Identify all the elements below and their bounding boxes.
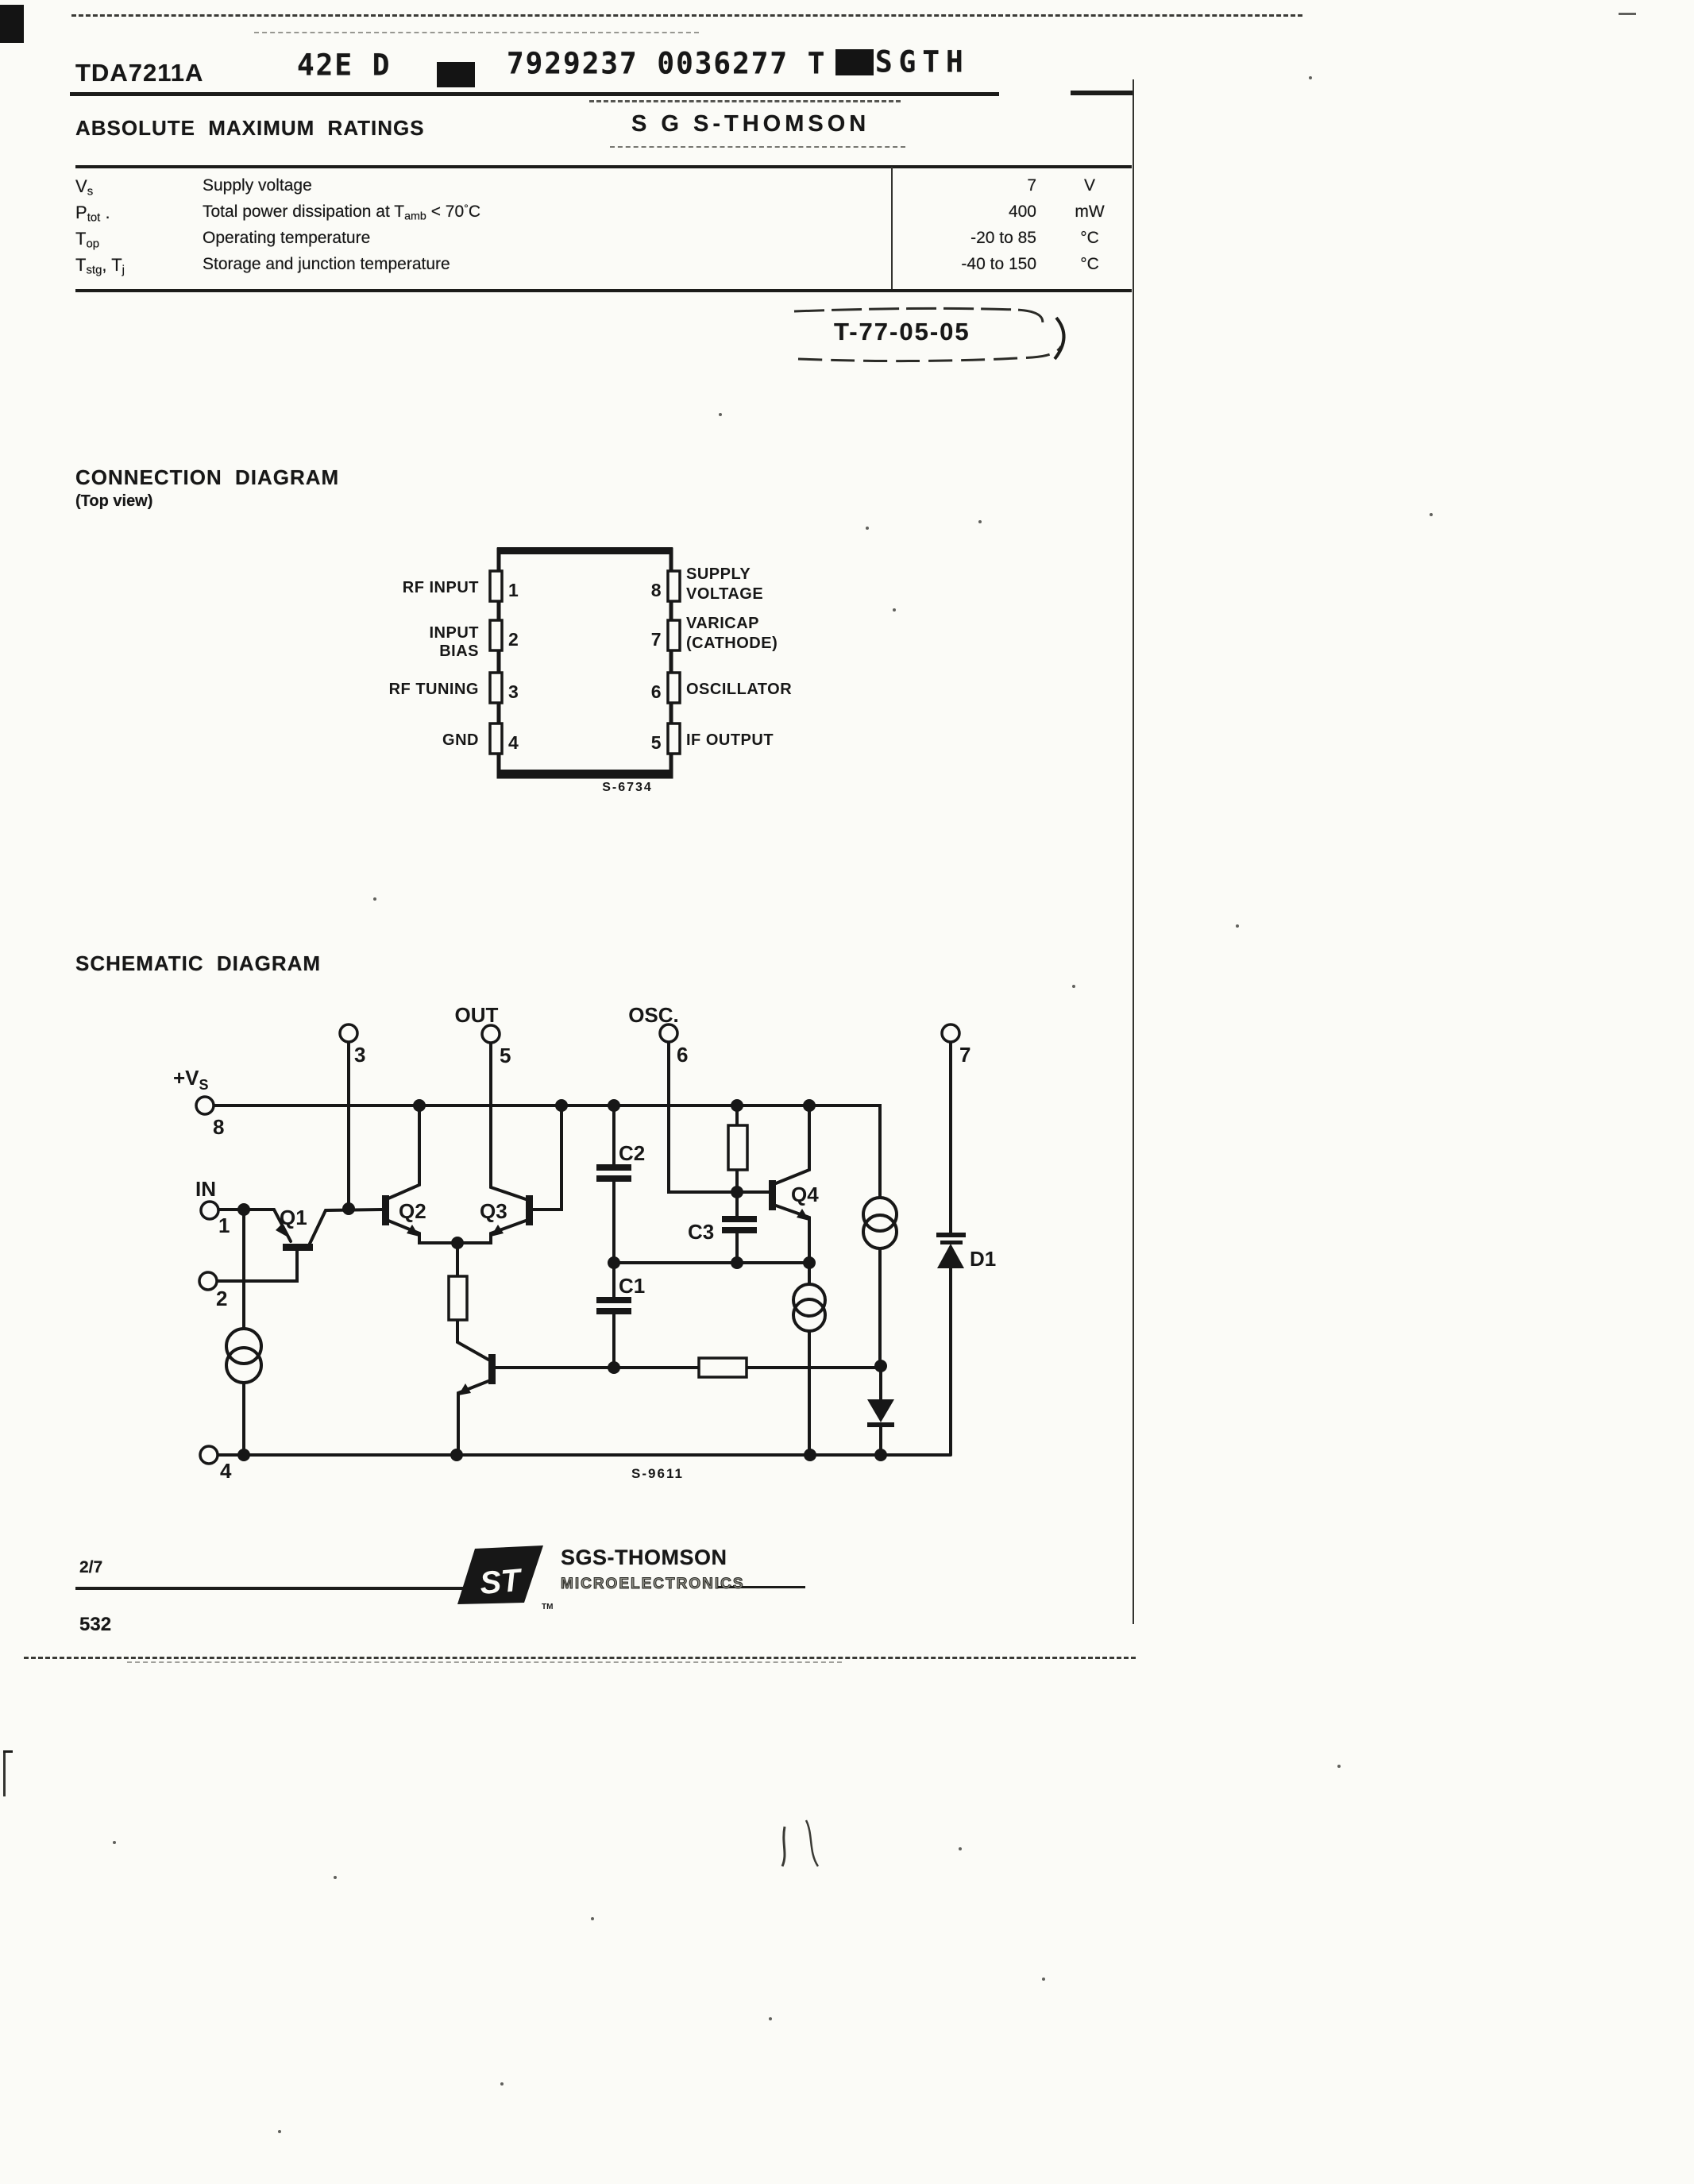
pin-label-1: RF INPUT — [403, 579, 479, 596]
label-pin4: 4 — [220, 1459, 232, 1483]
scan-speck — [113, 1841, 116, 1844]
scan-speck — [719, 413, 722, 416]
scan-speck — [373, 897, 376, 901]
label-pin8: 8 — [213, 1115, 224, 1139]
rating-symbol: Ptot . — [75, 203, 199, 225]
pin-label-2: BIAS — [439, 642, 479, 660]
ratings-row: Tstg, TjStorage and junction temperature… — [0, 255, 1136, 281]
label-q2: Q2 — [399, 1199, 426, 1223]
pin-label-8: SUPPLY — [686, 565, 751, 583]
terminal-6 — [660, 1024, 677, 1042]
q2-arrow — [407, 1225, 419, 1237]
pin-label-7: (CATHODE) — [686, 635, 778, 652]
footer-rule-left — [75, 1587, 470, 1590]
scan-page-edge-line — [1133, 79, 1134, 1624]
rating-description: Storage and junction temperature — [203, 255, 806, 274]
label-q3: Q3 — [480, 1199, 507, 1223]
rating-value: -20 to 85 — [794, 229, 1036, 248]
q3-arrow — [491, 1225, 504, 1237]
connection-diagram-figure: 1RF INPUT2INPUTBIAS3RF TUNING4GND8SUPPLY… — [342, 516, 945, 810]
pin-number-5: 5 — [651, 732, 662, 753]
connection-subtitle: (Top view) — [75, 492, 152, 511]
pin-label-4: GND — [442, 731, 479, 749]
scan-speck — [591, 1917, 594, 1920]
rating-symbol: Vs — [75, 176, 199, 199]
label-q1: Q1 — [280, 1206, 307, 1229]
varicap-d1-bar — [936, 1233, 966, 1237]
terminal-5 — [482, 1025, 500, 1043]
pin-stub — [668, 673, 680, 703]
q4-bar — [769, 1180, 776, 1210]
capacitor-c1-plate — [596, 1297, 631, 1303]
datasheet-page: TDA7211A 42E D 7929237 0036277 T SGTH AB… — [0, 0, 1694, 2184]
scan-speck — [1072, 985, 1075, 988]
scan-blot-top-left — [0, 5, 24, 43]
label-pin3: 3 — [354, 1043, 365, 1067]
label-vs: +VS — [173, 1066, 209, 1093]
rating-symbol: Top — [75, 229, 199, 251]
varicap-d1-bar2 — [940, 1241, 963, 1244]
label-pin2: 2 — [216, 1287, 227, 1310]
scan-speck — [769, 2017, 772, 2020]
scan-speck — [866, 527, 869, 530]
resistors — [449, 1125, 747, 1377]
brand-name: SGS-THOMSON — [561, 1545, 727, 1570]
label-c1: C1 — [619, 1274, 645, 1298]
pin-label-8: VOLTAGE — [686, 585, 763, 603]
scan-speck — [278, 2130, 281, 2133]
pin-label-2: INPUT — [430, 624, 480, 642]
rating-value: 400 — [794, 203, 1036, 222]
rating-description: Supply voltage — [203, 176, 806, 195]
pin-number-4: 4 — [508, 732, 519, 753]
ratings-row: VsSupply voltage7V — [0, 176, 1136, 203]
sgs-stamp-line-bottom — [610, 146, 905, 148]
svg-text:ST: ST — [478, 1563, 524, 1602]
label-pin7: 7 — [959, 1043, 970, 1067]
rating-description: Total power dissipation at Tamb < 70°C — [203, 203, 806, 223]
scan-speck — [1236, 924, 1239, 928]
rating-symbol: Tstg, Tj — [75, 255, 199, 277]
header-code: 42E D — [297, 48, 391, 83]
rating-unit: mW — [1061, 203, 1118, 222]
pin-number-2: 2 — [508, 629, 519, 650]
q1-bar — [283, 1244, 313, 1251]
label-q4: Q4 — [791, 1183, 819, 1206]
folio-number: 532 — [79, 1614, 111, 1636]
pen-marks — [762, 1811, 842, 1922]
scan-speck — [500, 2082, 504, 2086]
scan-broken-line-bottom — [24, 1657, 1136, 1659]
label-osc: OSC. — [628, 1003, 679, 1027]
terminal-3 — [340, 1024, 357, 1042]
connection-figure-code: S-6734 — [602, 781, 653, 794]
diode-bar — [867, 1422, 894, 1427]
scan-dotted-line-top2 — [254, 32, 699, 33]
pin-number-6: 6 — [651, 681, 662, 702]
ratings-row: TopOperating temperature-20 to 85°C — [0, 229, 1136, 255]
pin-label-7: VARICAP — [686, 615, 759, 632]
pin-stub — [668, 571, 680, 601]
schematic-figure: OUT OSC. 3 5 6 7 +VS 8 IN 1 2 4 Q1 Q2 Q3… — [159, 985, 1017, 1493]
scan-speck — [1042, 1978, 1045, 1981]
label-c2: C2 — [619, 1141, 645, 1165]
q3-bar — [526, 1195, 533, 1225]
pin-label-3: RF TUNING — [389, 681, 479, 698]
terminal-7 — [942, 1024, 959, 1042]
label-pin5: 5 — [500, 1044, 511, 1067]
header-rule-right — [1071, 91, 1134, 95]
pin-stub — [490, 723, 502, 754]
pin-stub — [490, 673, 502, 703]
current-sources — [226, 1198, 897, 1383]
pin-label-5: IF OUTPUT — [686, 731, 774, 749]
pin-label-6: OSCILLATOR — [686, 681, 792, 698]
terminal-4 — [200, 1446, 218, 1464]
scan-broken-line-bottom2 — [127, 1661, 842, 1663]
pin-stub — [668, 620, 680, 650]
scan-speck — [1309, 76, 1312, 79]
sgs-thomson-stamp: S G S-THOMSON — [631, 111, 870, 137]
scan-speck — [334, 1876, 337, 1879]
rating-unit: V — [1061, 176, 1118, 195]
pin-number-3: 3 — [508, 681, 519, 702]
page-number: 2/7 — [79, 1558, 102, 1577]
dip-package-body — [499, 550, 671, 777]
ratings-title: ABSOLUTE MAXIMUM RATINGS — [75, 116, 425, 141]
scan-dotted-line-top — [71, 14, 1302, 17]
date-stamp-text: T-77-05-05 — [834, 318, 970, 346]
capacitor-c3-plate — [722, 1216, 757, 1222]
capacitor-c1-plate — [596, 1308, 631, 1314]
rating-description: Operating temperature — [203, 229, 806, 248]
pin-number-8: 8 — [651, 580, 662, 600]
label-in: IN — [195, 1177, 216, 1201]
terminal-1 — [201, 1202, 218, 1219]
sgs-stamp-line-top — [589, 100, 901, 102]
q4-arrow — [797, 1209, 809, 1221]
table-rule-top — [75, 165, 1132, 168]
pin-stub — [490, 620, 502, 650]
barcode-block-icon — [835, 49, 874, 75]
dip-package-top-edge — [497, 547, 673, 554]
label-out: OUT — [455, 1003, 499, 1027]
label-pin1: 1 — [218, 1214, 230, 1237]
dip-package-bottom-edge — [497, 770, 673, 777]
q2-bar — [382, 1195, 389, 1225]
schematic-title: SCHEMATIC DIAGRAM — [75, 951, 321, 976]
schematic-figure-code: S-9611 — [631, 1466, 684, 1481]
scan-mark-left-edge2 — [3, 1750, 13, 1753]
header-serial: 7929237 0036277 T — [507, 47, 826, 81]
barcode-block-icon — [437, 62, 475, 87]
scan-speck — [893, 608, 896, 612]
schematic-wires — [214, 1042, 951, 1455]
pin-stub — [668, 723, 680, 754]
capacitor-c2-plate — [596, 1175, 631, 1182]
pin-stub — [490, 571, 502, 601]
st-logo-icon: ST TM — [453, 1539, 556, 1612]
diode-triangle — [867, 1399, 894, 1422]
pin-number-1: 1 — [508, 580, 519, 600]
scan-speck — [1430, 513, 1433, 516]
scan-speck — [959, 1847, 962, 1850]
table-rule-bottom — [75, 289, 1132, 292]
label-c3: C3 — [688, 1220, 714, 1244]
scan-speck — [1337, 1765, 1341, 1768]
label-d1: D1 — [970, 1247, 996, 1271]
pin-number-7: 7 — [651, 629, 662, 650]
scan-mark-left-edge — [3, 1750, 6, 1796]
ratings-row: Ptot .Total power dissipation at Tamb < … — [0, 203, 1136, 229]
connection-title: CONNECTION DIAGRAM — [75, 465, 339, 490]
scan-speck — [978, 520, 982, 523]
rating-unit: °C — [1061, 255, 1118, 274]
scan-dash-top-right — [1619, 13, 1636, 15]
terminal-2 — [199, 1272, 217, 1290]
capacitor-c2-plate — [596, 1164, 631, 1171]
resistor — [699, 1358, 747, 1377]
header-rule — [70, 92, 999, 96]
capacitor-c3-plate — [722, 1227, 757, 1233]
terminal-8 — [196, 1097, 214, 1114]
part-number: TDA7211A — [75, 59, 203, 87]
rating-unit: °C — [1061, 229, 1118, 248]
rating-value: -40 to 150 — [794, 255, 1036, 274]
resistor — [728, 1125, 747, 1170]
resistor — [449, 1276, 467, 1320]
header-suffix: SGTH — [875, 45, 970, 79]
varicap-d1-triangle — [937, 1244, 964, 1268]
q5-bar — [488, 1354, 496, 1384]
rating-value: 7 — [794, 176, 1036, 195]
trademark-mark: TM — [542, 1603, 553, 1611]
brand-subtitle: MICROELECTRONICS — [561, 1576, 745, 1593]
label-pin6: 6 — [677, 1043, 688, 1067]
